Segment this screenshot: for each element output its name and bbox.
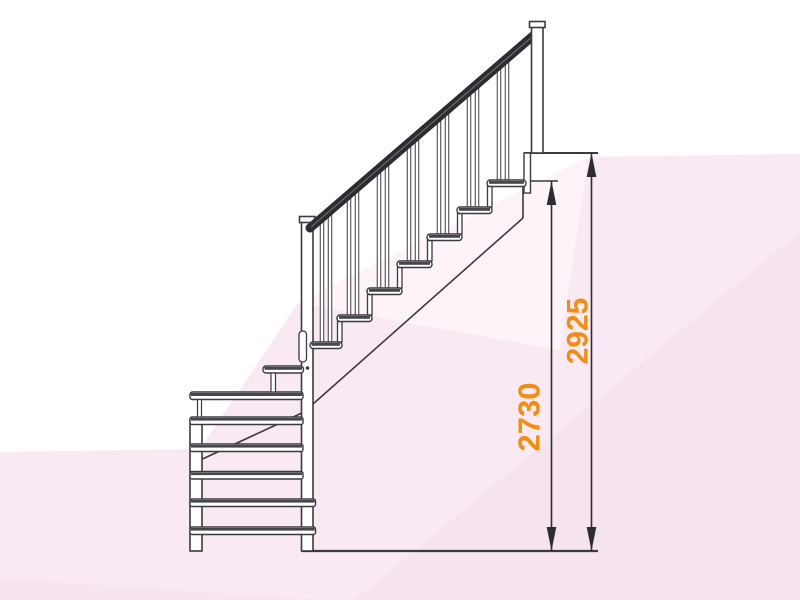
baluster — [355, 186, 359, 315]
dimension-label-2925: 2925 — [562, 298, 595, 365]
riser — [458, 214, 463, 235]
landing-fascia — [524, 153, 531, 193]
post-bracket — [299, 331, 307, 362]
baluster — [385, 161, 389, 288]
riser — [488, 187, 493, 208]
riser — [368, 295, 373, 316]
staircase-diagram: 2730 2925 — [0, 0, 800, 600]
baluster — [328, 210, 332, 342]
baluster — [407, 142, 411, 261]
top-newel-post — [532, 27, 544, 153]
riser — [428, 241, 433, 262]
baluster — [415, 135, 419, 261]
riser — [398, 268, 403, 289]
baluster — [437, 116, 441, 234]
post-screw — [306, 366, 310, 370]
baluster — [445, 109, 449, 234]
riser — [338, 322, 343, 343]
winder-tread-support — [271, 373, 276, 392]
dimension-label-2730: 2730 — [512, 383, 547, 452]
top-newel — [530, 22, 546, 154]
baluster — [320, 216, 324, 342]
baluster — [347, 193, 351, 315]
top-newel-cap — [530, 22, 546, 28]
baluster — [505, 58, 509, 180]
baluster — [475, 83, 479, 207]
baluster — [377, 167, 381, 288]
background-facets — [0, 0, 800, 600]
baluster — [467, 90, 471, 207]
lower-tread-support — [198, 400, 202, 418]
baluster — [497, 64, 501, 180]
